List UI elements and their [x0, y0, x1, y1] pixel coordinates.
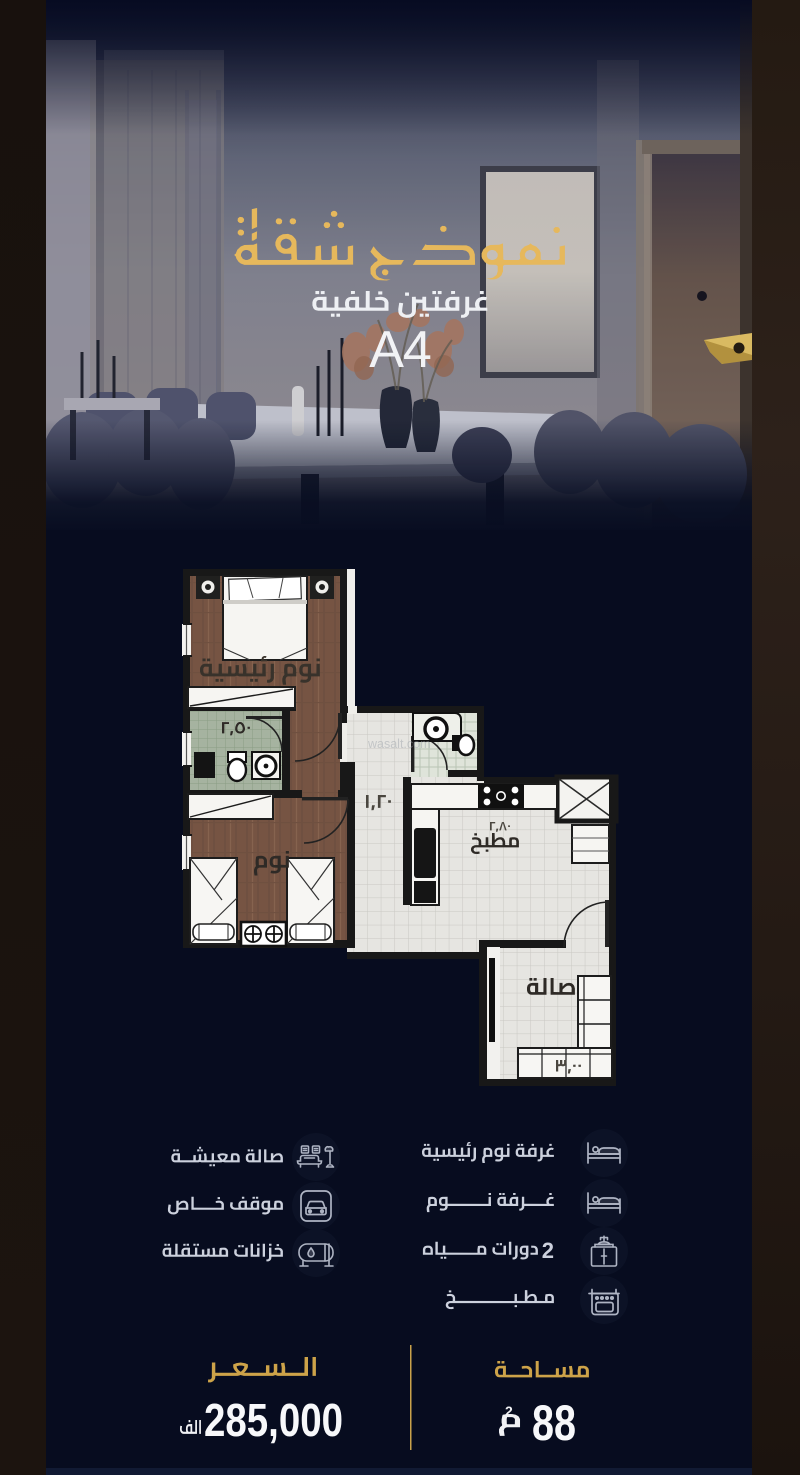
- svg-text:285,000: 285,000: [204, 1394, 343, 1446]
- svg-text:wasalt.com: wasalt.com: [367, 737, 431, 751]
- svg-text:2: 2: [505, 1403, 513, 1419]
- svg-text:A4: A4: [369, 321, 431, 379]
- svg-text:88: 88: [532, 1395, 576, 1451]
- svg-text:2: 2: [542, 1238, 554, 1263]
